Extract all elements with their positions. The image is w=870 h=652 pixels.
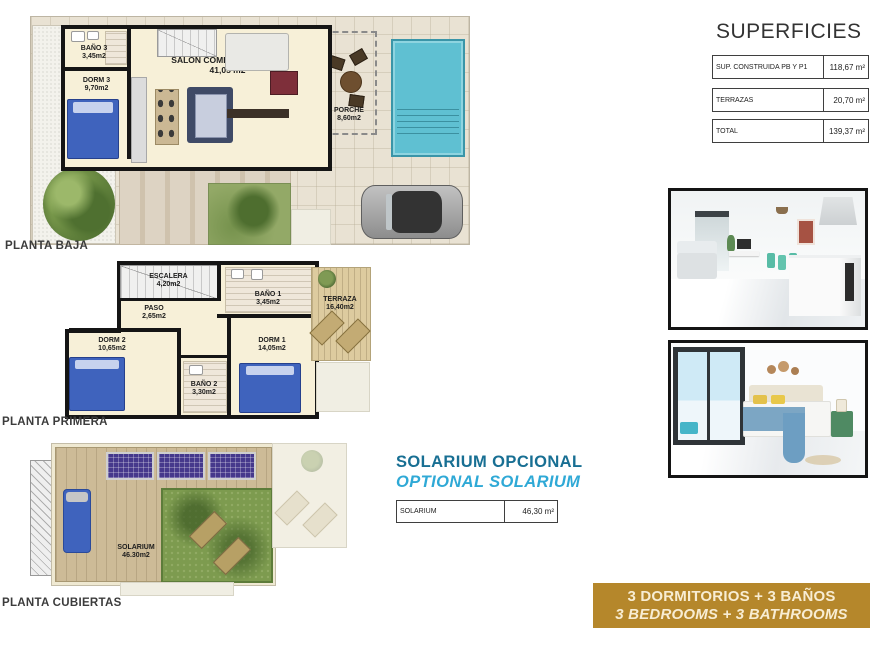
sink-graphic xyxy=(87,31,99,40)
sink-graphic xyxy=(189,365,203,375)
bed-graphic xyxy=(69,357,125,411)
photo-bedroom xyxy=(668,340,868,478)
sink-graphic xyxy=(231,269,244,279)
photo-oven-column xyxy=(845,263,854,301)
photo-plant xyxy=(727,235,735,251)
interior-wall xyxy=(177,355,231,358)
banner-line-es: 3 DORMITORIOS + 3 BAÑOS xyxy=(627,588,835,605)
bedrooms-bathrooms-banner: 3 DORMITORIOS + 3 BAÑOS 3 BEDROOMS + 3 B… xyxy=(593,583,870,628)
coffee-table-graphic xyxy=(270,71,298,95)
car-windshield xyxy=(386,194,392,229)
solarium-table: SOLARIUM 46,30 m² xyxy=(396,500,558,523)
plant-graphic xyxy=(318,270,336,288)
solar-panel xyxy=(157,452,205,480)
sun-lounger xyxy=(274,490,309,525)
palm-tree-graphic xyxy=(43,167,115,241)
sofa-graphic xyxy=(225,33,289,71)
stairs-graphic xyxy=(157,29,217,57)
solarium-optional-subtitle: OPTIONAL SOLARIUM xyxy=(396,473,580,492)
photo-pillow-yellow xyxy=(753,395,767,404)
roof-edge-strip xyxy=(120,582,234,596)
photo-tv-unit xyxy=(729,251,759,256)
lounger-headrest xyxy=(66,492,89,502)
superficies-row-value: 139,37 m² xyxy=(823,120,868,142)
dining-table-top xyxy=(195,94,226,139)
room-label-paso: PASO 2,65m2 xyxy=(124,305,184,322)
kitchen-counter xyxy=(131,77,147,163)
solarium-optional-title: SOLARIUM OPCIONAL xyxy=(396,453,582,472)
interior-wall xyxy=(69,328,181,332)
car-cabin xyxy=(390,191,442,233)
room-label-dorm2: DORM 2 10,65m2 xyxy=(77,337,147,354)
room-label-terraza: TERRAZA 16,40m2 xyxy=(312,296,368,313)
photo-tv xyxy=(737,239,751,249)
floorplan-planta-baja: PORCHE 8,60m2 BAÑO 3 3,45m2 DORM 3 9,70m… xyxy=(30,16,470,245)
garden-grass xyxy=(208,183,291,245)
solarium-deck: SOLARIUM 46.30m2 xyxy=(55,447,272,582)
bed-pillow xyxy=(75,360,118,369)
room-label-bano1: BAÑO 1 3,45m2 xyxy=(229,291,307,308)
floor-label-planta-primera: PLANTA PRIMERA xyxy=(2,416,108,428)
interior-wall xyxy=(217,265,221,301)
photo-window xyxy=(673,347,745,445)
neighbor-terrace-faded xyxy=(272,443,347,548)
superficies-row: SUP. CONSTRUIDA PB Y P1 118,67 m² xyxy=(712,55,869,79)
garden-steps xyxy=(291,209,331,245)
bed-pillow xyxy=(246,366,294,375)
floor-label-planta-cubiertas: PLANTA CUBIERTAS xyxy=(2,597,122,609)
bed-graphic xyxy=(239,363,301,413)
photo-chair-teal xyxy=(778,255,786,270)
terrace-deck: TERRAZA 16,40m2 xyxy=(311,267,371,361)
solarium-table-label: SOLARIUM xyxy=(397,501,504,522)
photo-pillow-yellow xyxy=(771,395,785,404)
roof-grass xyxy=(161,488,273,583)
toilet-graphic xyxy=(251,269,263,280)
porch-chair xyxy=(348,94,365,108)
floorplan-planta-primera: ESCALERA 4,20m2 BAÑO 1 3,45m2 PASO 2,65m… xyxy=(65,261,319,419)
room-label-escalera: ESCALERA 4,20m2 xyxy=(120,273,217,290)
plant-graphic xyxy=(301,450,323,472)
photo-range-hood xyxy=(819,197,857,225)
solar-panel xyxy=(106,452,154,480)
wall-plate-decor xyxy=(791,367,799,375)
interior-wall xyxy=(227,314,231,415)
photo-pendant-lamp xyxy=(776,207,788,214)
room-label-solarium: SOLARIUM 46.30m2 xyxy=(86,544,186,561)
sun-lounger xyxy=(189,511,227,549)
room-label-porche: PORCHE 8,60m2 xyxy=(325,107,373,124)
interior-wall xyxy=(65,67,129,71)
photo-living-kitchen xyxy=(668,188,868,330)
pool-graphic xyxy=(391,39,465,157)
house-ground-floor: BAÑO 3 3,45m2 DORM 3 9,70m2 SALON COMEDO… xyxy=(61,25,332,171)
photo-nightstand xyxy=(831,411,853,437)
bed-pillow xyxy=(73,102,113,112)
superficies-row-label: TERRAZAS xyxy=(713,89,823,111)
wall-plate-decor xyxy=(767,365,776,374)
superficies-title: SUPERFICIES xyxy=(716,20,862,44)
bed-graphic xyxy=(67,99,119,159)
superficies-row-value: 20,70 m² xyxy=(823,89,868,111)
exterior-notch xyxy=(65,261,121,333)
sun-lounger xyxy=(213,537,251,575)
superficies-row-value: 118,67 m² xyxy=(823,56,868,78)
superficies-row-label: TOTAL xyxy=(713,120,823,142)
interior-wall xyxy=(177,328,181,415)
superficies-row: TERRAZAS 20,70 m² xyxy=(712,88,869,112)
solarium-table-value: 46,30 m² xyxy=(504,501,557,522)
porch-chair xyxy=(349,48,368,66)
floor-label-planta-baja: PLANTA BAJA xyxy=(5,240,88,252)
photo-chair-teal xyxy=(767,253,775,268)
photo-sofa xyxy=(677,253,717,279)
interior-wall xyxy=(217,314,315,318)
window-mullion xyxy=(707,352,710,440)
banner-line-en: 3 BEDROOMS + 3 BATHROOMS xyxy=(615,606,847,623)
photo-artwork xyxy=(797,219,815,245)
porch-table xyxy=(340,71,362,93)
wall-plate-decor xyxy=(778,361,789,372)
pool-lane-lines xyxy=(397,105,459,135)
room-label-bano3: BAÑO 3 3,45m2 xyxy=(65,45,123,62)
room-label-dorm3: DORM 3 9,70m2 xyxy=(69,77,124,94)
interior-wall xyxy=(117,298,221,301)
solar-panels xyxy=(106,452,256,480)
kitchen-island xyxy=(155,89,179,145)
room-label-bano2: BAÑO 2 3,30m2 xyxy=(179,381,229,398)
sun-lounger xyxy=(302,502,337,537)
room-label-dorm1: DORM 1 14,05m2 xyxy=(237,337,307,354)
tv-unit-graphic xyxy=(227,109,289,118)
window-view-pool xyxy=(680,422,698,434)
roof-below-terrace xyxy=(316,362,370,412)
toilet-graphic xyxy=(71,31,85,42)
photo-throw-drape xyxy=(783,413,805,463)
superficies-row: TOTAL 139,37 m² xyxy=(712,119,869,143)
superficies-row-label: SUP. CONSTRUIDA PB Y P1 xyxy=(713,56,823,78)
solar-panel xyxy=(208,452,256,480)
photo-rug xyxy=(805,455,841,465)
photo-lamp xyxy=(836,399,847,412)
car-graphic xyxy=(361,185,463,239)
